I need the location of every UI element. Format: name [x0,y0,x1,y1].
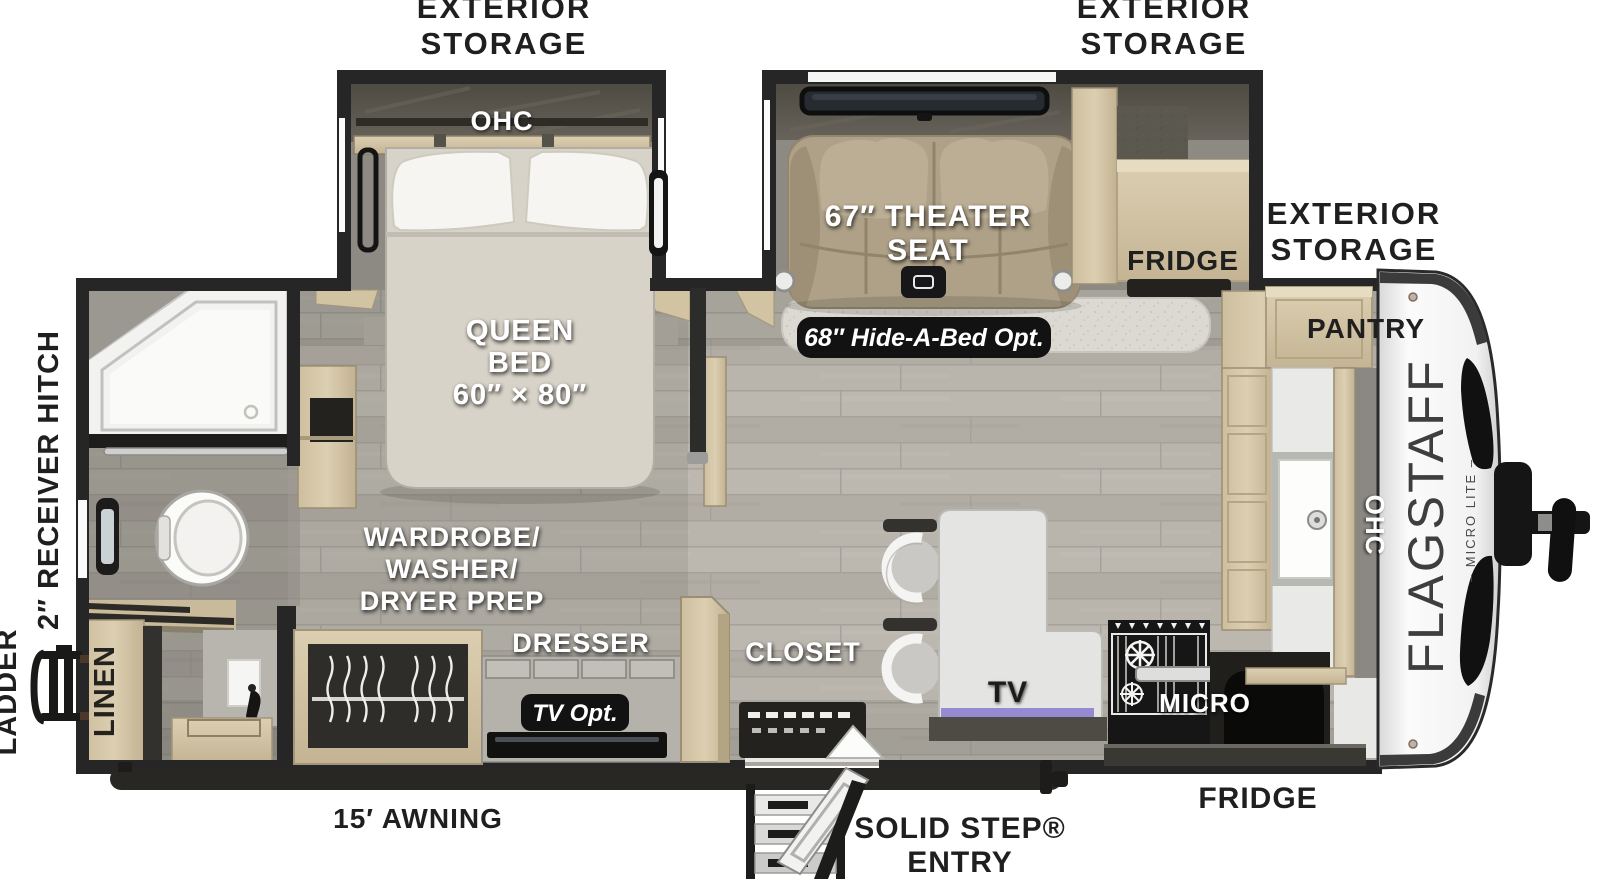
svg-text:EXTERIOR: EXTERIOR [1267,196,1441,231]
svg-text:EXTERIOR: EXTERIOR [417,0,591,25]
svg-text:68″ Hide-A-Bed Opt.: 68″ Hide-A-Bed Opt. [804,324,1044,352]
svg-text:LINEN: LINEN [89,645,121,737]
svg-text:MICRO: MICRO [1159,688,1251,718]
svg-text:WARDROBE/: WARDROBE/ [364,522,541,552]
svg-text:2″ RECEIVER HITCH: 2″ RECEIVER HITCH [33,330,65,630]
svg-text:FRIDGE: FRIDGE [1127,245,1239,276]
svg-text:67″ THEATER: 67″ THEATER [825,200,1032,233]
svg-text:FLAGSTAFF: FLAGSTAFF [1398,358,1454,674]
svg-text:STORAGE: STORAGE [421,26,588,61]
svg-text:SEAT: SEAT [887,234,969,267]
svg-text:CLOSET: CLOSET [745,637,861,667]
svg-text:WASHER/: WASHER/ [385,554,518,584]
svg-text:60″ × 80″: 60″ × 80″ [453,379,587,411]
svg-text:STORAGE: STORAGE [1081,26,1248,61]
svg-text:TV Opt.: TV Opt. [532,700,617,727]
svg-text:QUEEN: QUEEN [466,315,574,347]
svg-text:OHC: OHC [471,106,534,136]
svg-text:EXTERIOR: EXTERIOR [1077,0,1251,25]
svg-text:SOLID STEP®: SOLID STEP® [854,812,1065,845]
svg-text:DRYER PREP: DRYER PREP [360,586,545,616]
svg-text:15′ AWNING: 15′ AWNING [333,803,503,834]
svg-text:BED: BED [488,347,552,379]
svg-text:LADDER: LADDER [0,629,23,756]
svg-text:OHC: OHC [1360,495,1390,556]
svg-text:– MICRO LITE –: – MICRO LITE – [1463,458,1478,582]
svg-text:PANTRY: PANTRY [1307,313,1425,344]
svg-text:DRESSER: DRESSER [512,628,650,658]
svg-text:STORAGE: STORAGE [1271,232,1438,267]
svg-text:TV: TV [988,676,1028,709]
svg-text:ENTRY: ENTRY [907,846,1013,879]
svg-text:FRIDGE: FRIDGE [1198,782,1317,815]
